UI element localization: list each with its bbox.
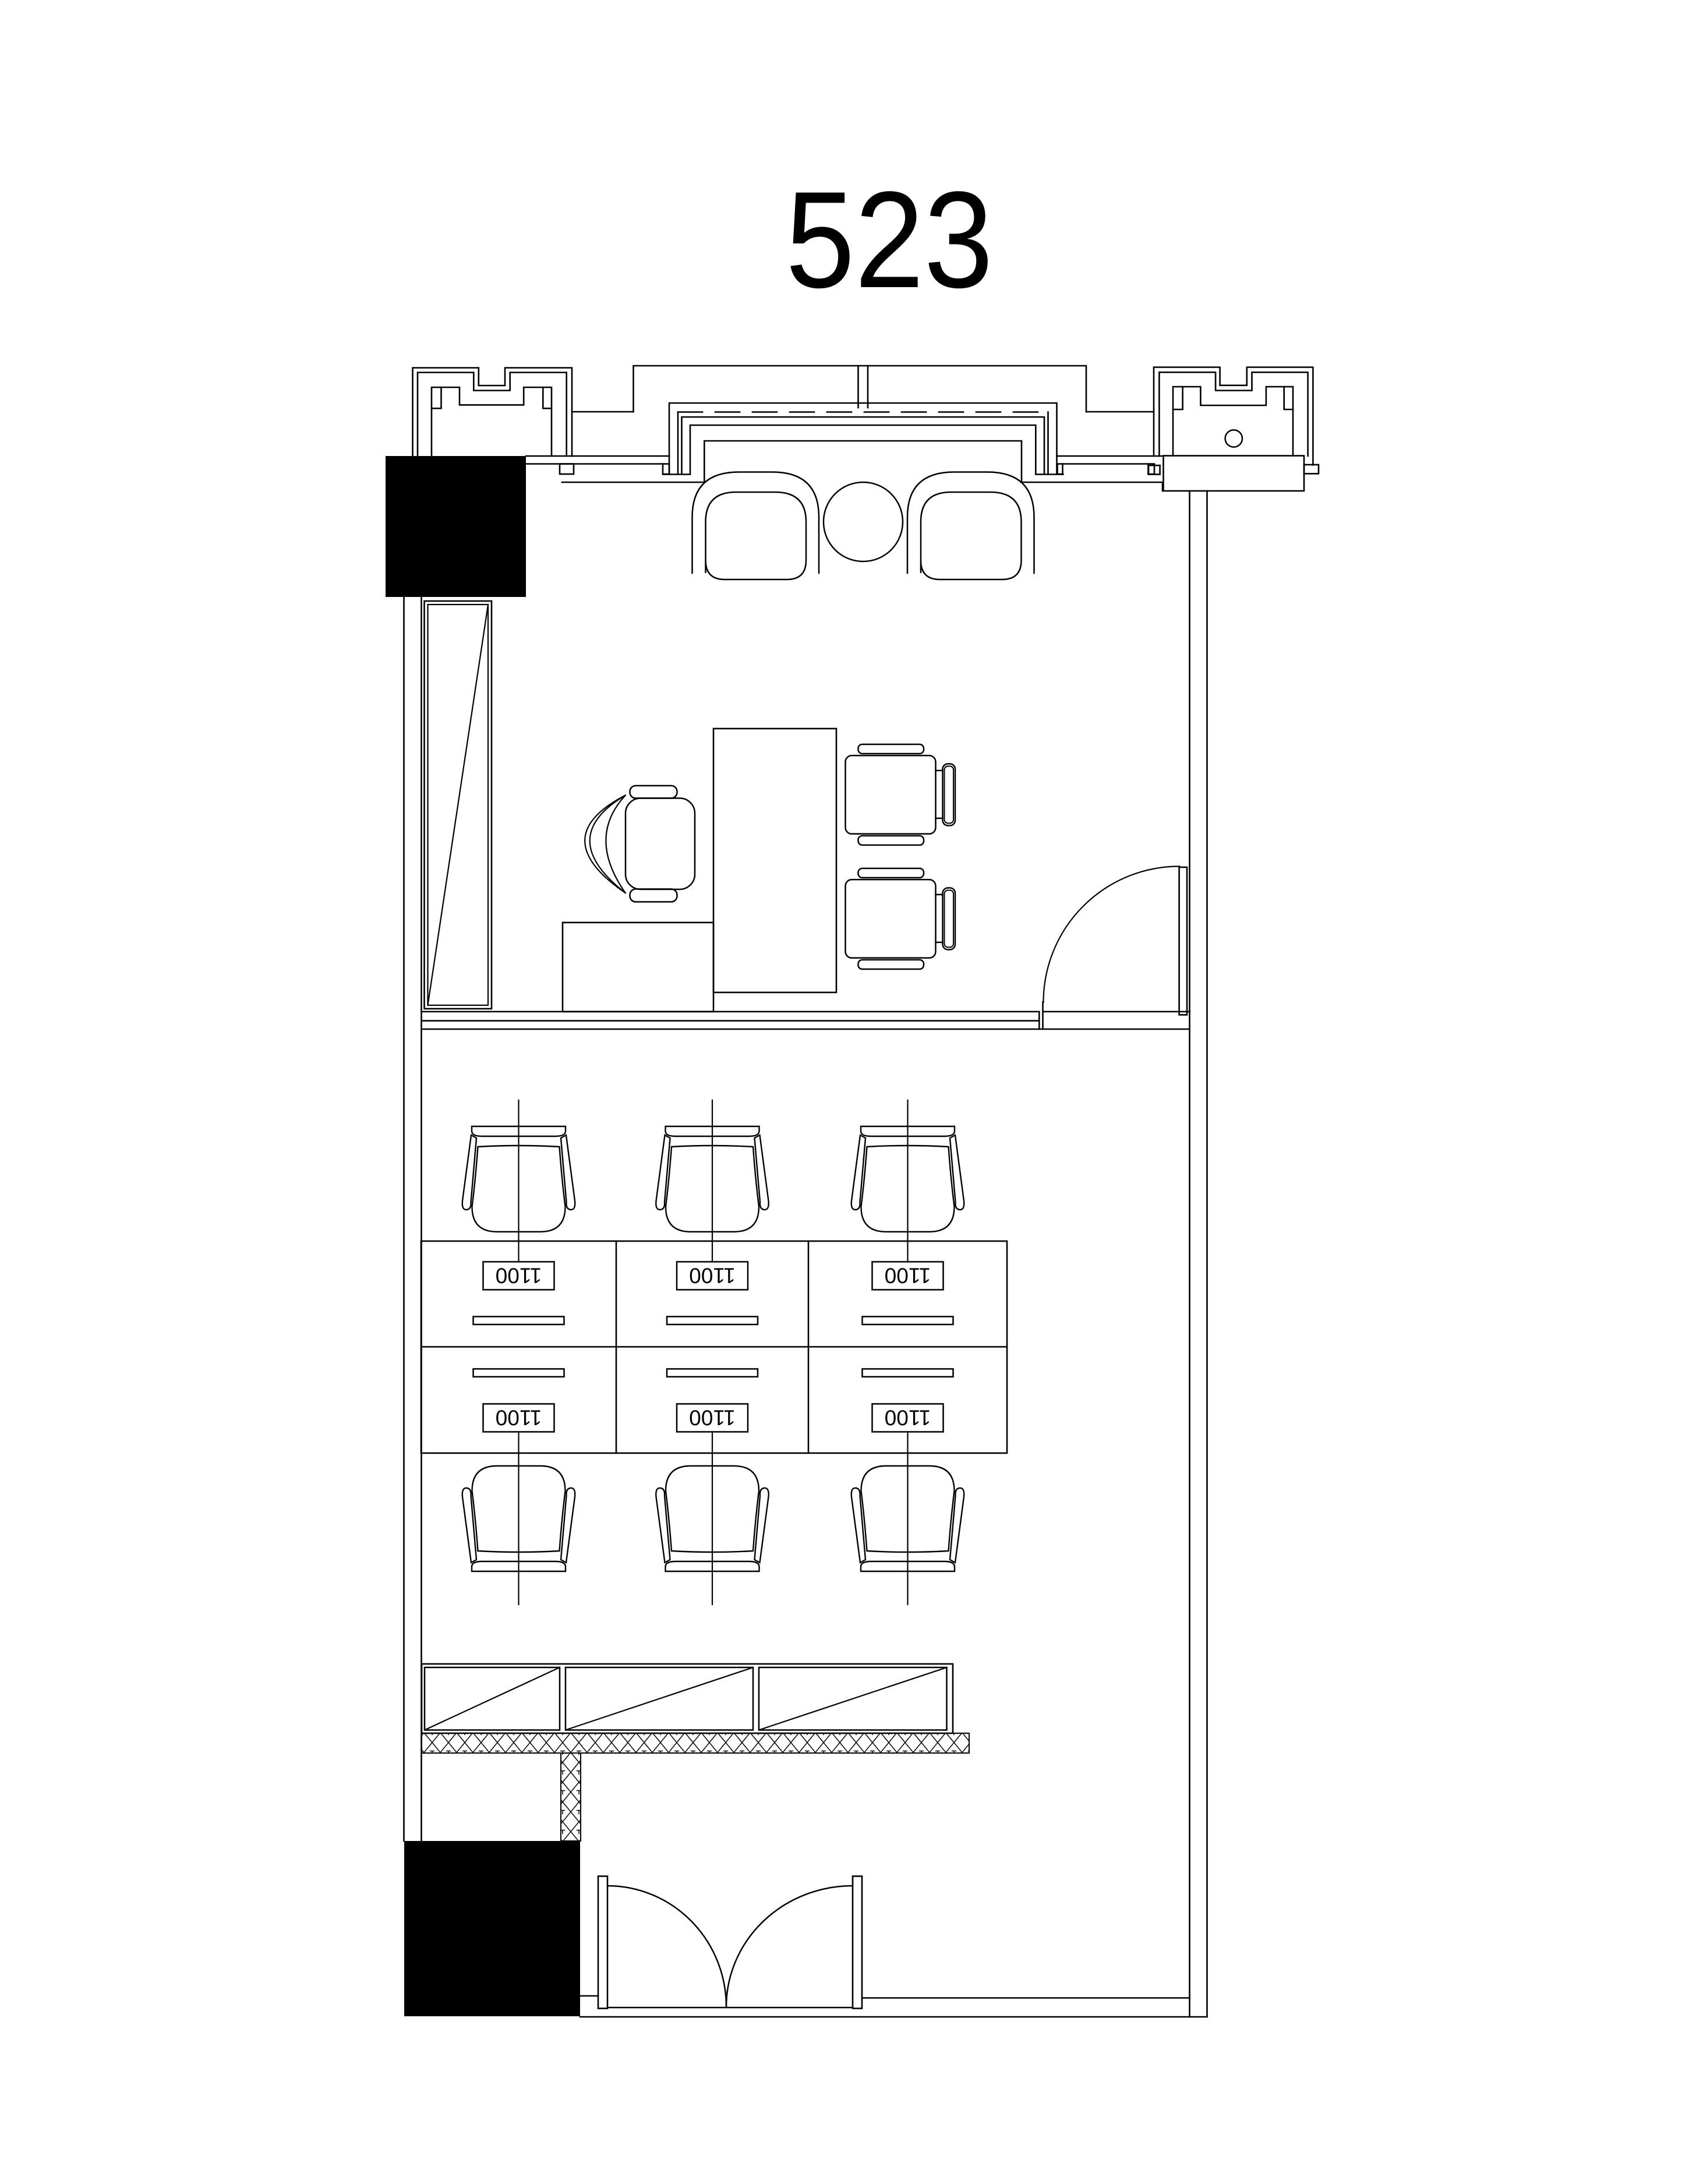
svg-text:1100: 1100 [885,1406,931,1430]
svg-text:1100: 1100 [496,1264,542,1288]
svg-text:1100: 1100 [689,1406,736,1430]
svg-text:1100: 1100 [496,1406,542,1430]
svg-text:1100: 1100 [885,1264,931,1288]
svg-text:523: 523 [786,162,993,316]
svg-text:1100: 1100 [689,1264,736,1288]
